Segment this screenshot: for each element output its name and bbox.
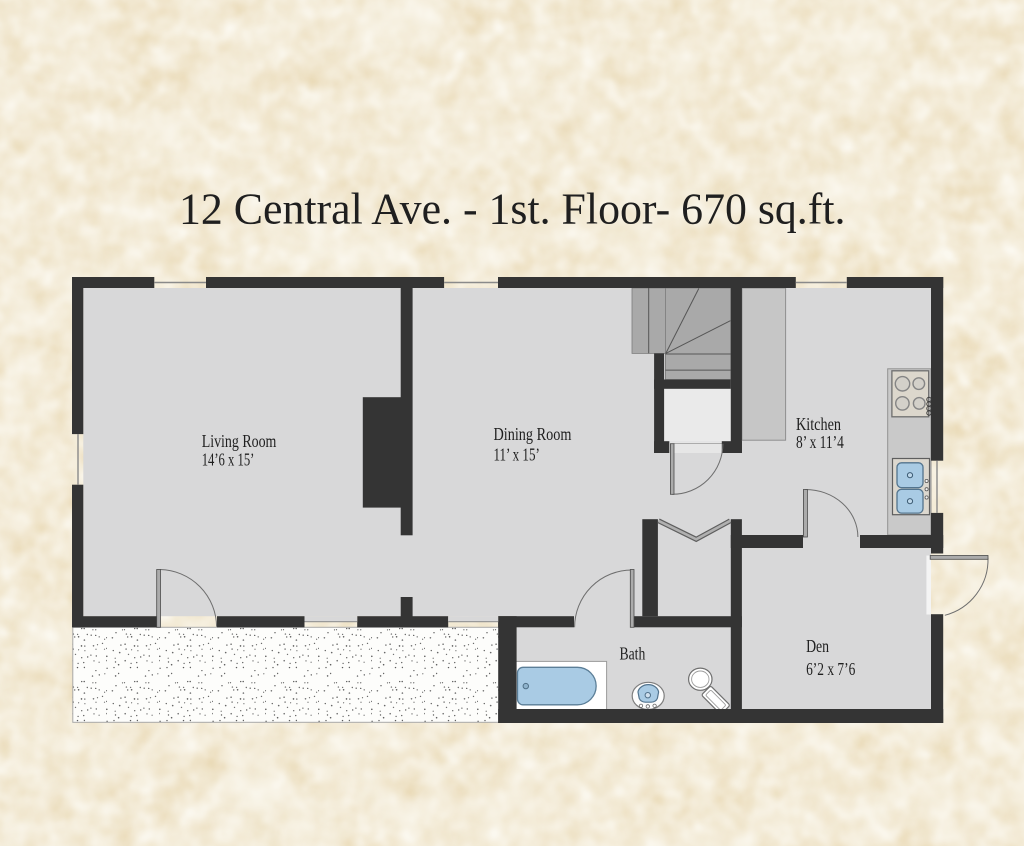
svg-text:6’2 x 7’6: 6’2 x 7’6 (806, 659, 855, 679)
svg-text:Den: Den (806, 636, 829, 656)
svg-text:12 Central Ave. - 1st. Floor-: 12 Central Ave. - 1st. Floor- 670 sq.ft. (179, 185, 846, 234)
svg-text:8’ x 11’4: 8’ x 11’4 (796, 432, 844, 452)
svg-text:Dining Room: Dining Room (494, 424, 572, 444)
svg-text:11’ x 15’: 11’ x 15’ (494, 445, 540, 465)
svg-text:14’6 x 15’: 14’6 x 15’ (202, 450, 255, 470)
svg-text:Bath: Bath (620, 644, 646, 664)
svg-text:Living Room: Living Room (202, 431, 277, 451)
